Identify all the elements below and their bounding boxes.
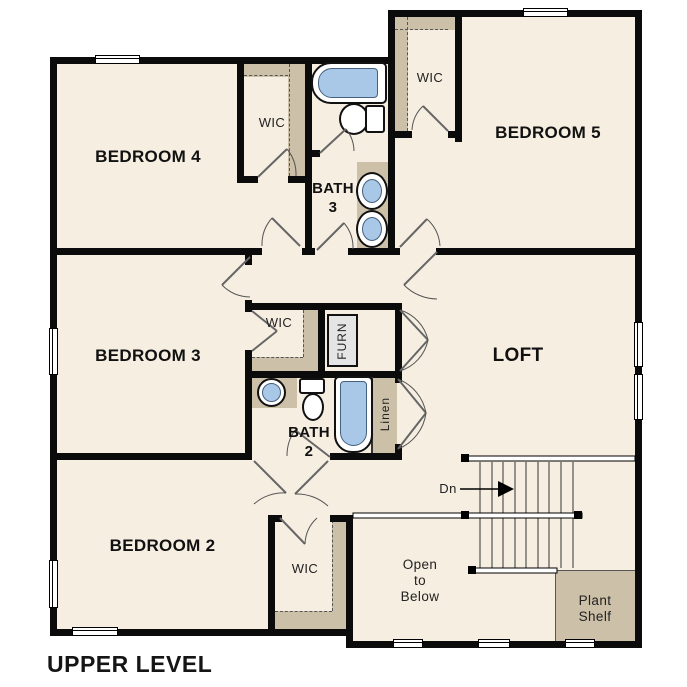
stair-newel-post: [461, 511, 469, 519]
door-arc: [398, 379, 426, 449]
door-arcs: [222, 106, 440, 544]
door-arc: [346, 129, 354, 151]
room-label-bedroom5: BEDROOM 5: [460, 122, 636, 143]
room-label-bath2: BATH 2: [286, 424, 332, 462]
stair-rail: [472, 568, 557, 573]
door-arc: [412, 106, 423, 130]
door-arc: [305, 518, 317, 544]
open-to-below-label: Open to Below: [383, 557, 457, 605]
room-label-wic2: WIC: [283, 561, 327, 576]
door-arc: [254, 493, 328, 506]
room-label-wic5: WIC: [408, 70, 452, 85]
door-arc: [400, 310, 428, 371]
stair-newel-post: [461, 454, 469, 462]
room-label-bedroom3: BEDROOM 3: [58, 345, 238, 366]
stair-rails: [353, 454, 635, 574]
stair-newel-post: [574, 511, 582, 519]
door-arc: [287, 149, 296, 176]
stair-newel-post: [468, 566, 476, 574]
room-label-bath3: BATH 3: [310, 180, 356, 218]
room-label-linen: Linen: [378, 384, 392, 444]
stair-treads-lower: [480, 518, 573, 568]
door-arc: [262, 218, 272, 246]
page-title: UPPER LEVEL: [47, 651, 347, 678]
stair-treads-upper: [480, 462, 573, 513]
room-label-loft: LOFT: [468, 344, 568, 368]
door-arc: [344, 223, 353, 249]
floor-plan-upper-level: BEDROOM 4 WIC BATH 3 WIC BEDROOM 5 BEDRO…: [0, 0, 687, 687]
plant-shelf-label: Plant Shelf: [563, 593, 627, 625]
room-label-wic3: WIC: [257, 315, 301, 330]
down-arrow-icon: [460, 481, 514, 497]
room-label-furnace: FURN: [335, 311, 349, 371]
stair-rail: [465, 456, 635, 461]
door-arc: [404, 285, 437, 299]
stairs-down-label: Dn: [436, 481, 460, 496]
room-label-bedroom2: BEDROOM 2: [70, 535, 255, 556]
door-arc: [222, 285, 250, 297]
door-arc: [427, 219, 440, 246]
room-label-wic4: WIC: [250, 115, 294, 130]
room-label-bedroom4: BEDROOM 4: [58, 146, 238, 167]
